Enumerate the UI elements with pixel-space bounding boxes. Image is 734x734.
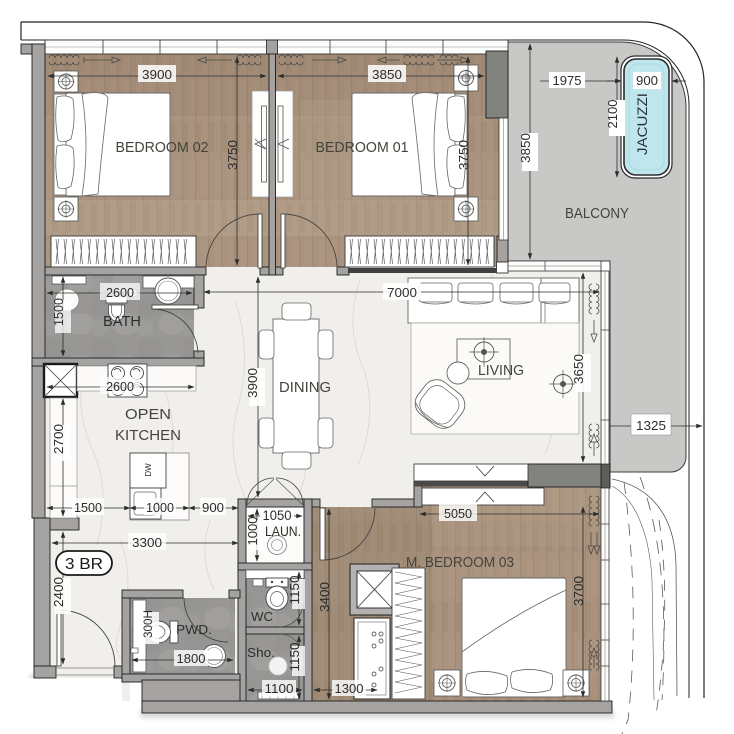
svg-text:3300: 3300: [132, 535, 162, 550]
svg-text:3750: 3750: [456, 140, 471, 170]
svg-text:1300: 1300: [335, 681, 364, 696]
svg-text:OPEN: OPEN: [125, 406, 171, 423]
svg-text:3 BR: 3 BR: [65, 556, 103, 573]
svg-text:3650: 3650: [571, 354, 586, 384]
svg-text:KITCHEN: KITCHEN: [115, 427, 181, 444]
svg-text:LAUN.: LAUN.: [265, 524, 301, 539]
svg-text:1500: 1500: [74, 500, 102, 515]
svg-text:1325: 1325: [636, 418, 666, 433]
svg-text:LIVING: LIVING: [478, 362, 524, 379]
svg-text:900: 900: [636, 73, 658, 88]
svg-text:1000: 1000: [245, 517, 260, 546]
svg-text:2700: 2700: [51, 424, 66, 454]
svg-text:1150: 1150: [287, 643, 302, 672]
svg-text:1050: 1050: [263, 508, 292, 523]
svg-text:5050: 5050: [444, 506, 472, 521]
svg-text:3750: 3750: [225, 140, 240, 170]
svg-text:3900: 3900: [245, 368, 260, 398]
svg-text:3400: 3400: [317, 582, 332, 612]
svg-text:M. BEDROOM 03: M. BEDROOM 03: [406, 554, 514, 571]
svg-text:WC: WC: [251, 609, 273, 624]
svg-text:1800: 1800: [177, 651, 206, 666]
svg-text:3850: 3850: [518, 133, 533, 163]
svg-text:BEDROOM 02: BEDROOM 02: [116, 139, 209, 156]
svg-text:3700: 3700: [571, 576, 586, 606]
svg-text:DW: DW: [144, 463, 153, 477]
svg-text:2600: 2600: [106, 285, 134, 300]
svg-text:BALCONY: BALCONY: [565, 205, 629, 222]
svg-text:BATH: BATH: [103, 313, 141, 330]
svg-text:300H: 300H: [141, 610, 155, 638]
svg-text:3900: 3900: [142, 67, 172, 82]
svg-text:DINING: DINING: [279, 379, 331, 396]
svg-text:2100: 2100: [605, 100, 620, 129]
svg-text:PWD.: PWD.: [176, 622, 212, 637]
svg-text:1150: 1150: [287, 576, 302, 605]
svg-text:1500: 1500: [51, 298, 66, 326]
svg-text:Sho.: Sho.: [247, 645, 275, 660]
svg-text:1100: 1100: [265, 681, 294, 696]
svg-text:JACUZZI: JACUZZI: [635, 93, 650, 155]
svg-text:2600: 2600: [106, 379, 134, 394]
svg-text:1000: 1000: [146, 500, 174, 515]
svg-text:BEDROOM 01: BEDROOM 01: [316, 139, 409, 156]
svg-text:900: 900: [202, 500, 224, 515]
svg-text:7000: 7000: [387, 285, 417, 300]
svg-text:1975: 1975: [553, 73, 582, 88]
svg-text:3850: 3850: [372, 67, 402, 82]
svg-text:2400: 2400: [51, 577, 66, 607]
